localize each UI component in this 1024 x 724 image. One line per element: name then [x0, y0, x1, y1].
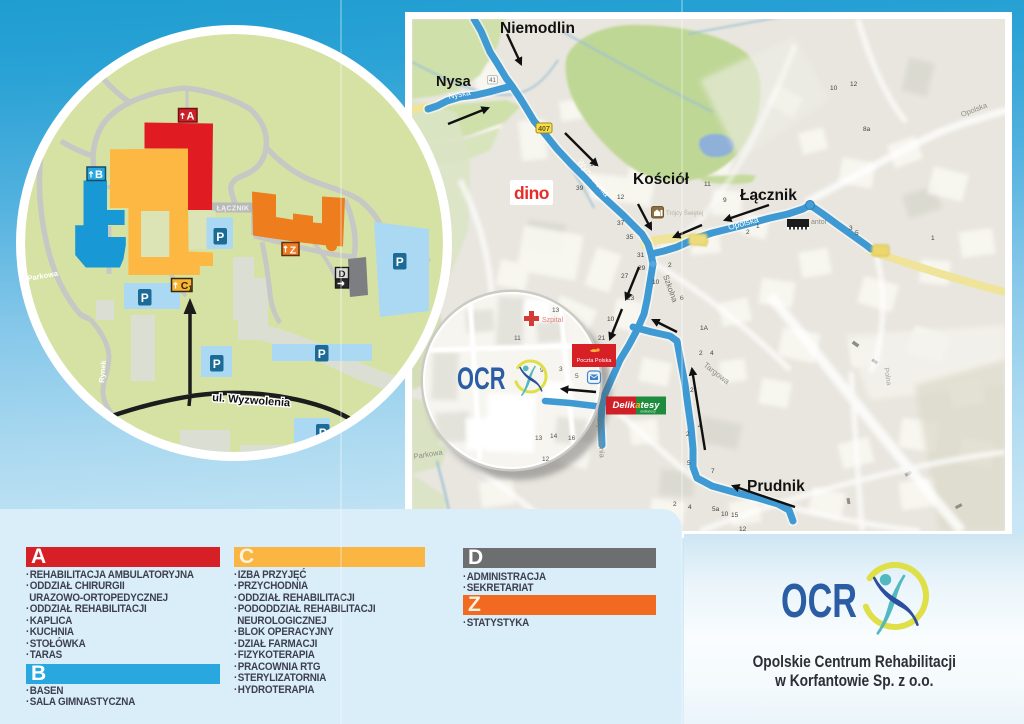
svg-text:dino: dino — [514, 183, 549, 203]
svg-text:1A: 1A — [700, 325, 709, 332]
svg-text:27: 27 — [621, 273, 629, 280]
svg-text:14: 14 — [550, 433, 558, 440]
svg-text:7: 7 — [711, 468, 715, 475]
svg-text:P: P — [213, 357, 221, 371]
svg-text:P: P — [216, 230, 224, 244]
svg-text:2: 2 — [673, 501, 677, 508]
svg-text:10: 10 — [830, 85, 838, 92]
svg-text:10: 10 — [652, 279, 660, 286]
svg-text:C: C — [181, 280, 189, 292]
svg-text:Łącznik: Łącznik — [740, 187, 797, 204]
svg-text:12: 12 — [850, 81, 858, 88]
svg-text:21: 21 — [598, 335, 606, 342]
svg-text:3: 3 — [559, 366, 563, 373]
svg-text:2: 2 — [699, 350, 703, 357]
svg-text:407: 407 — [538, 126, 550, 133]
svg-text:P: P — [318, 347, 326, 361]
svg-text:13: 13 — [552, 307, 560, 314]
svg-text:Szpital: Szpital — [542, 317, 563, 324]
svg-text:1: 1 — [756, 223, 760, 230]
svg-text:35: 35 — [626, 234, 634, 241]
svg-text:ŁĄCZNIK: ŁĄCZNIK — [217, 206, 250, 213]
svg-text:2: 2 — [686, 431, 690, 438]
svg-text:5: 5 — [575, 373, 579, 380]
svg-text:Niemodlin: Niemodlin — [500, 20, 575, 37]
svg-text:10: 10 — [607, 316, 615, 323]
svg-text:A: A — [187, 111, 195, 123]
svg-text:4: 4 — [688, 504, 692, 511]
svg-text:4: 4 — [710, 350, 714, 357]
svg-text:OCR: OCR — [457, 360, 506, 396]
svg-text:1: 1 — [189, 286, 193, 293]
svg-text:9: 9 — [723, 197, 727, 204]
svg-text:Z: Z — [290, 245, 297, 257]
svg-text:2: 2 — [668, 262, 672, 269]
svg-text:5: 5 — [687, 460, 691, 467]
svg-text:39: 39 — [576, 185, 584, 192]
svg-text:31: 31 — [637, 252, 645, 259]
svg-text:P: P — [396, 255, 404, 269]
svg-text:1: 1 — [931, 235, 935, 242]
svg-text:15: 15 — [731, 512, 739, 519]
svg-text:8a: 8a — [863, 126, 871, 133]
svg-text:13: 13 — [535, 435, 543, 442]
svg-text:11: 11 — [514, 335, 521, 342]
svg-text:12: 12 — [617, 194, 625, 201]
svg-text:16: 16 — [568, 435, 576, 442]
svg-text:P: P — [141, 291, 149, 305]
svg-text:41: 41 — [489, 78, 496, 84]
svg-text:12: 12 — [739, 526, 747, 531]
svg-text:Poczta Polska: Poczta Polska — [577, 358, 613, 364]
svg-text:Trójcy Świętej: Trójcy Świętej — [666, 209, 703, 217]
svg-text:delikatesy: delikatesy — [640, 410, 656, 414]
svg-text:OCR: OCR — [781, 575, 857, 628]
svg-text:antor: antor — [811, 219, 828, 226]
svg-text:5: 5 — [855, 230, 859, 237]
svg-text:37: 37 — [617, 220, 625, 227]
svg-text:B: B — [95, 169, 103, 181]
svg-text:5a: 5a — [712, 506, 720, 513]
svg-text:2: 2 — [690, 387, 694, 394]
svg-text:3: 3 — [849, 225, 853, 232]
svg-text:2: 2 — [746, 229, 750, 236]
svg-text:10: 10 — [721, 511, 729, 518]
svg-text:11: 11 — [704, 181, 711, 188]
